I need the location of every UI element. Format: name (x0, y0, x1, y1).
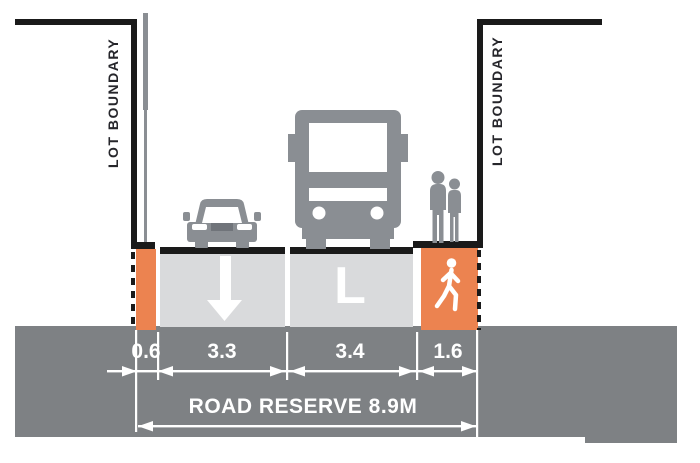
dimension-label-footpath: 1.6 (426, 341, 470, 363)
pole-icon (143, 13, 148, 110)
lot-boundary-left-vertical-line (131, 19, 137, 248)
lot-boundary-left-horizontal-line (15, 19, 137, 25)
walking-person-icon (434, 257, 467, 317)
lane-marking-letter: L (328, 260, 372, 312)
road-reserve-label: ROAD RESERVE 8.9M (153, 395, 453, 419)
road-cross-section-diagram: LOT BOUNDARY LOT BOUNDARY L (0, 0, 700, 463)
car-icon (183, 195, 261, 248)
dashed-boundary-right (477, 250, 481, 330)
lot-boundary-label-left: LOT BOUNDARY (105, 38, 121, 168)
dashed-boundary-left (131, 252, 135, 330)
dimension-label-verge: 0.6 (124, 341, 168, 363)
lot-boundary-right-horizontal-line (478, 19, 602, 25)
lot-boundary-label-right: LOT BOUNDARY (489, 36, 505, 166)
lot-boundary-right-vertical-line (477, 19, 483, 244)
pedestrians-icon (425, 170, 465, 244)
pole-icon-lower (144, 110, 147, 244)
dimension-label-lane-1: 3.3 (200, 341, 244, 363)
verge-strip-left (136, 249, 156, 330)
truck-icon (288, 108, 408, 249)
kerb-cap-left (131, 242, 155, 249)
down-arrow-icon (204, 256, 246, 322)
carriageway-surface-line-1 (160, 247, 285, 254)
dimension-label-lane-2: 3.4 (328, 341, 372, 363)
